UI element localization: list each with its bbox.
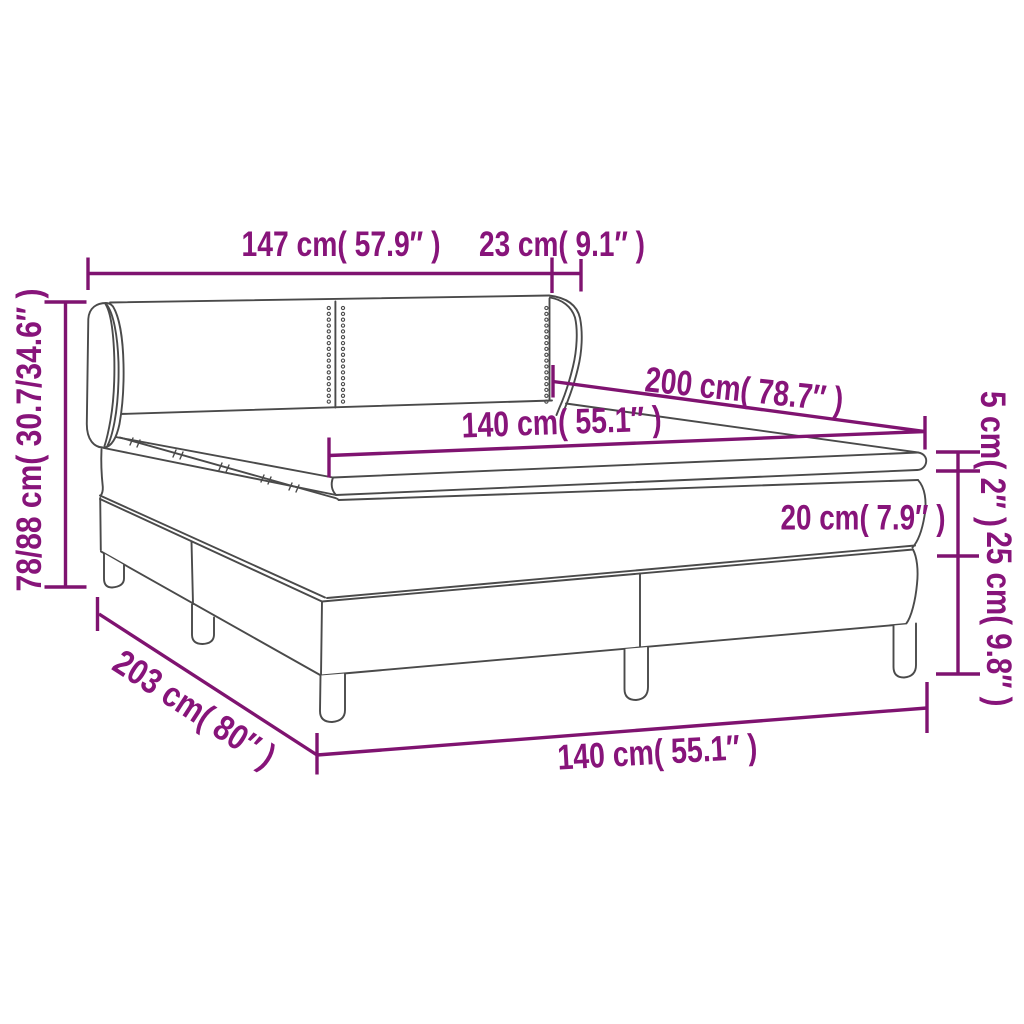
svg-text:23 cm( 9.1″ ): 23 cm( 9.1″ ) [479,224,645,264]
svg-text:147 cm( 57.9″ ): 147 cm( 57.9″ ) [242,224,441,264]
svg-text:5 cm( 2″ ): 5 cm( 2″ ) [973,391,1013,527]
svg-text:25 cm( 9.8″ ): 25 cm( 9.8″ ) [979,532,1019,707]
svg-text:20 cm( 7.9″ ): 20 cm( 7.9″ ) [781,498,946,538]
svg-text:140 cm( 55.1″ ): 140 cm( 55.1″ ) [461,399,662,446]
svg-text:78/88 cm( 30.7/34.6″ ): 78/88 cm( 30.7/34.6″ ) [9,289,49,592]
